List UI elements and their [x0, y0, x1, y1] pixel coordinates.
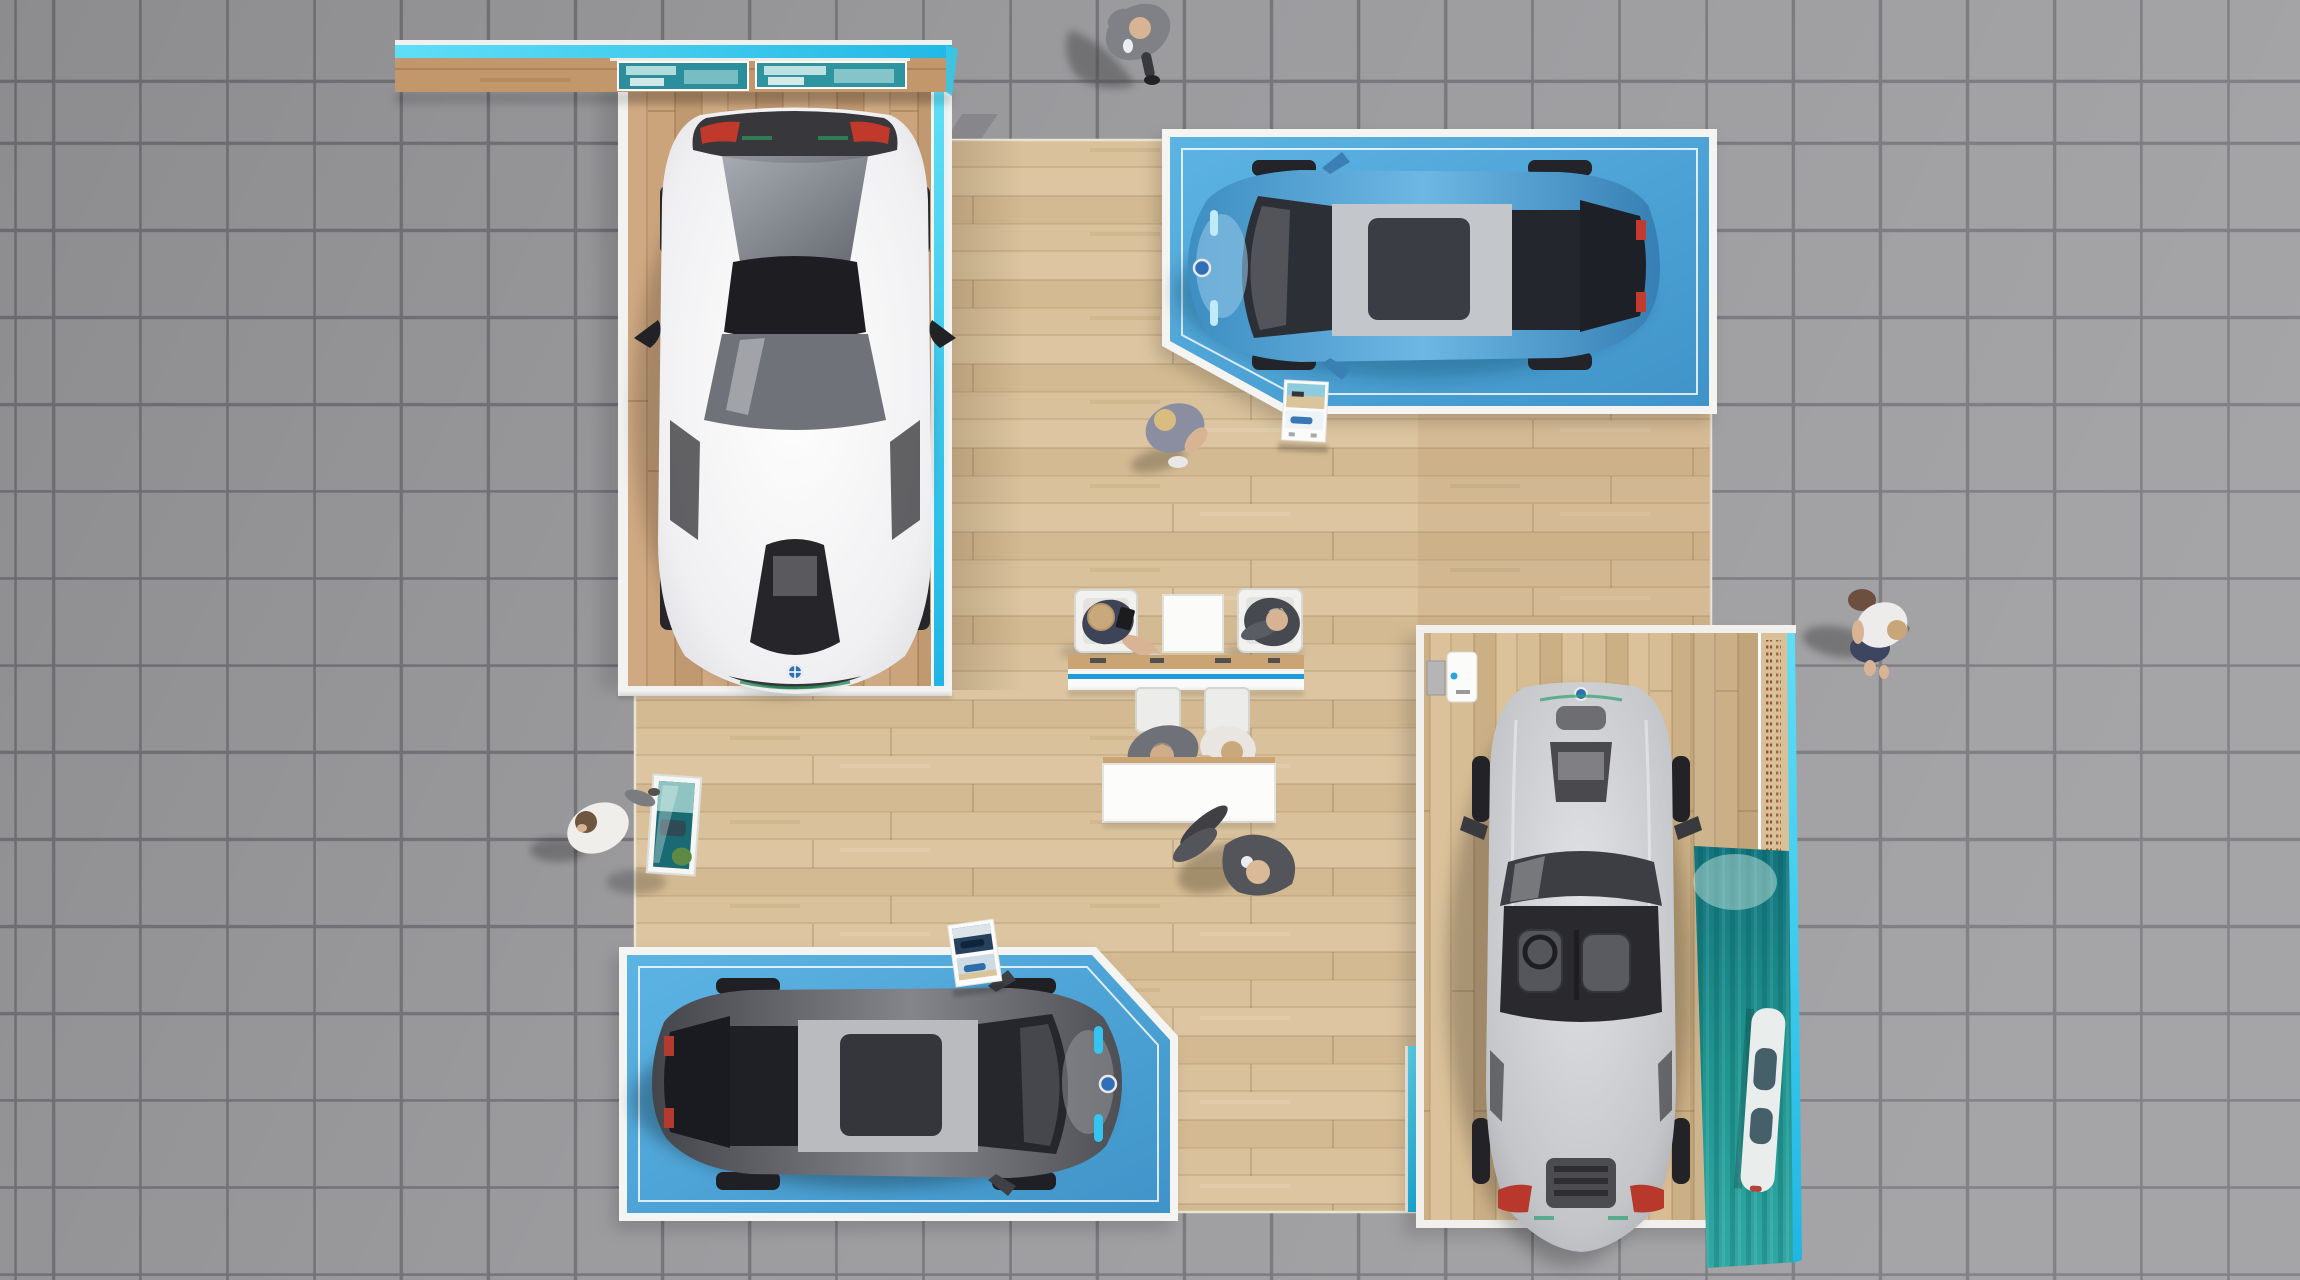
- car-gray-led-top: [1094, 1026, 1103, 1054]
- car-silver-roundel: [1575, 688, 1587, 700]
- platform-cyan-strip: [934, 92, 944, 686]
- stool-chair-left: [1136, 688, 1180, 732]
- car-white-roof: [724, 256, 866, 340]
- car-blue-roundel: [1194, 260, 1210, 276]
- car-blue-hatchback: [1174, 152, 1660, 380]
- car-silver-roadster: [1446, 682, 1702, 1266]
- showroom-scene: [0, 0, 2300, 1280]
- canopy-screen-right: [756, 62, 906, 88]
- car-gray-hatch: [664, 1016, 730, 1148]
- car-blue-hatch: [1580, 200, 1646, 332]
- person-woman-with-bag: [1800, 589, 1915, 679]
- car-white-engine-cover: [722, 156, 868, 262]
- person-phone-man: [1066, 0, 1180, 88]
- lounge-counter: [1068, 655, 1304, 696]
- white-desk: [1103, 757, 1275, 828]
- canopy-screen-left: [618, 62, 748, 90]
- car-gray-roundel: [1100, 1076, 1116, 1092]
- car-gray-led-bottom: [1094, 1114, 1103, 1142]
- coffee-table: [1163, 595, 1223, 652]
- counter-blue-stripe: [1068, 674, 1304, 679]
- car-white-windshield: [704, 334, 886, 430]
- header-canopy: [395, 40, 958, 104]
- car-gray-hatchback: [632, 970, 1122, 1196]
- car-silver-cockpit: [1500, 906, 1662, 1022]
- canopy-cyan-strip: [395, 45, 952, 59]
- showroom-render: [0, 0, 2300, 1280]
- car-blue-rear-window: [1512, 210, 1580, 330]
- car-white-coupe: [633, 108, 956, 698]
- car-gray-rear-window: [730, 1026, 798, 1146]
